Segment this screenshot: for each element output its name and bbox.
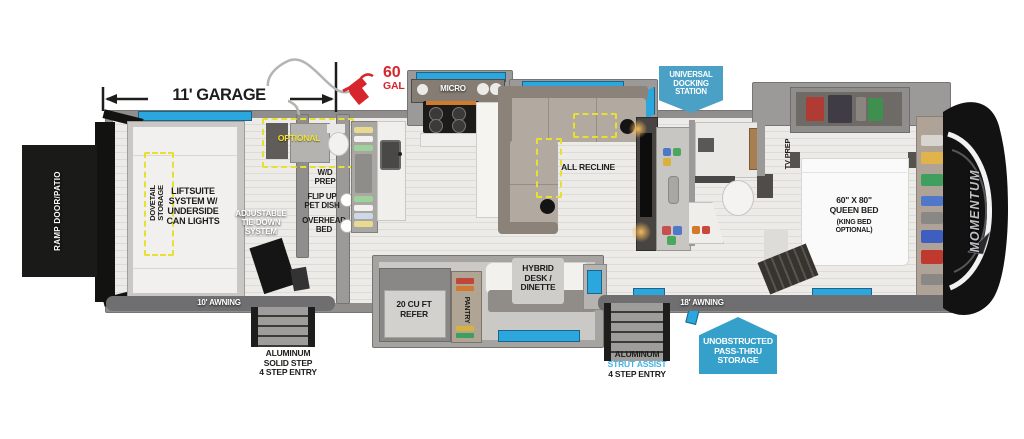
pantry-item-yellow	[456, 326, 474, 331]
floorplan-canvas: RAMP DOOR/PATIO DOVETAIL STORAGE LIFTSUI…	[0, 0, 1024, 439]
liftsuite-label: LIFTSUITE SYSTEM w/ UNDERSIDE CAN LIGHTS	[152, 186, 234, 234]
pantry-shelf-2	[354, 136, 373, 142]
awning-left-label: 10' AWNING	[179, 299, 259, 309]
closet-item-2	[921, 152, 943, 164]
pantry-shelf-3	[354, 145, 373, 151]
closet-item-5	[921, 212, 943, 224]
bath-cabinet	[757, 174, 773, 198]
shelf-item-6	[667, 236, 676, 245]
garage-dimension-label: 11' GARAGE	[150, 86, 288, 104]
stove-knobs	[426, 101, 476, 105]
sink-counter	[377, 121, 406, 221]
wd-prep-label: W/D PREP	[303, 169, 347, 189]
stove-counter	[420, 133, 484, 147]
shelf-item-5	[673, 226, 682, 235]
recline-zone-1	[573, 113, 617, 138]
shelf-item-2	[673, 148, 681, 156]
fireplace-glow-top	[628, 120, 648, 138]
burner-3	[429, 119, 443, 133]
pantry-shelf-7	[354, 221, 373, 227]
shelf-mirror	[668, 176, 679, 204]
closet-item-8	[921, 274, 943, 285]
shower-drain	[698, 138, 714, 152]
shelf-item-4	[662, 226, 671, 235]
stairs-left	[258, 307, 308, 347]
closet-item-1	[921, 135, 943, 146]
steps-left-label: ALUMINUM SOLID STEP 4 STEP ENTRY	[246, 349, 330, 381]
bath-right-wall	[757, 120, 765, 176]
nightstand-left	[790, 152, 800, 168]
docking-station-label: UNIVERSAL DOCKING STATION	[659, 71, 723, 101]
micro-speaker-right1	[477, 83, 489, 95]
slideout-window	[498, 330, 580, 342]
bed-label: 60" x 80" QUEEN BED	[811, 196, 897, 218]
pantry-keypad	[355, 154, 372, 193]
wardrobe-item-dark	[828, 95, 852, 123]
pantry-shelf-1	[354, 127, 373, 133]
pantry-item-red	[456, 278, 474, 284]
wardrobe-item-gray	[856, 97, 866, 121]
pantry-item-green	[456, 333, 474, 338]
passthru-label: UNOBSTRUCTED PASS-THRU STORAGE	[699, 337, 777, 371]
side-table-2	[540, 199, 555, 214]
pantry-shelf-4	[354, 196, 373, 202]
all-recline-label: ALL RECLINE	[560, 163, 616, 175]
micro-speaker-left	[417, 84, 428, 95]
pantry-shelf-6	[354, 213, 373, 219]
sofa-arm-bottom	[498, 222, 558, 234]
wardrobe-item-red	[806, 97, 824, 121]
shelf-item-1	[663, 148, 671, 156]
sofa-seat-div-1	[548, 98, 549, 142]
micro-label: MICRO	[432, 85, 474, 96]
entry-door-window	[587, 270, 602, 294]
brand-logo: MOMENTUM	[968, 151, 984, 271]
liftsuite-deck-line-bottom	[133, 268, 237, 269]
vanity-item-1	[692, 226, 700, 234]
fuel-pump-icon	[343, 74, 373, 105]
shelf-item-3	[663, 158, 671, 166]
optional-label: OPTIONAL	[268, 134, 330, 146]
wardrobe-item-green	[868, 98, 883, 121]
closet-item-3	[921, 174, 943, 186]
stairs-left-rail-1	[251, 307, 258, 347]
tv	[640, 133, 652, 217]
desk-label: HYBRID DESK / DINETTE	[514, 264, 562, 300]
fuel-qty-label: 60	[383, 64, 417, 80]
awning-right-label: 18' AWNING	[662, 299, 742, 309]
refer-label: 20 CU FT REFER	[386, 300, 442, 324]
toilet	[722, 180, 754, 216]
closet-item-7	[921, 250, 943, 264]
closet-item-6	[921, 230, 943, 243]
tiedown-label: ADJUSTABLE TIE-DOWN SYSTEM	[230, 210, 292, 244]
ramp-door-label: RAMP DOOR/PATIO	[54, 156, 66, 266]
closet-item-4	[921, 196, 943, 206]
steps-right-label-3: 4 STEP ENTRY	[599, 370, 675, 380]
garage-top-window	[138, 111, 252, 121]
vanity-item-2	[702, 226, 710, 234]
fireplace-glow-bottom	[630, 222, 652, 242]
burner-4	[452, 119, 466, 133]
fuel-unit-label: GAL	[383, 81, 417, 93]
stairs-left-rail-2	[308, 307, 315, 347]
bed-option-label: (KING BED OPTIONAL)	[811, 219, 897, 237]
recline-zone-2	[536, 138, 562, 198]
sink-faucet	[398, 152, 402, 156]
pantry-shelf-5	[354, 205, 373, 211]
ramp-frame	[95, 122, 115, 302]
pantry-label: PANTRY	[460, 290, 470, 330]
bed-pillow-line	[801, 172, 907, 173]
